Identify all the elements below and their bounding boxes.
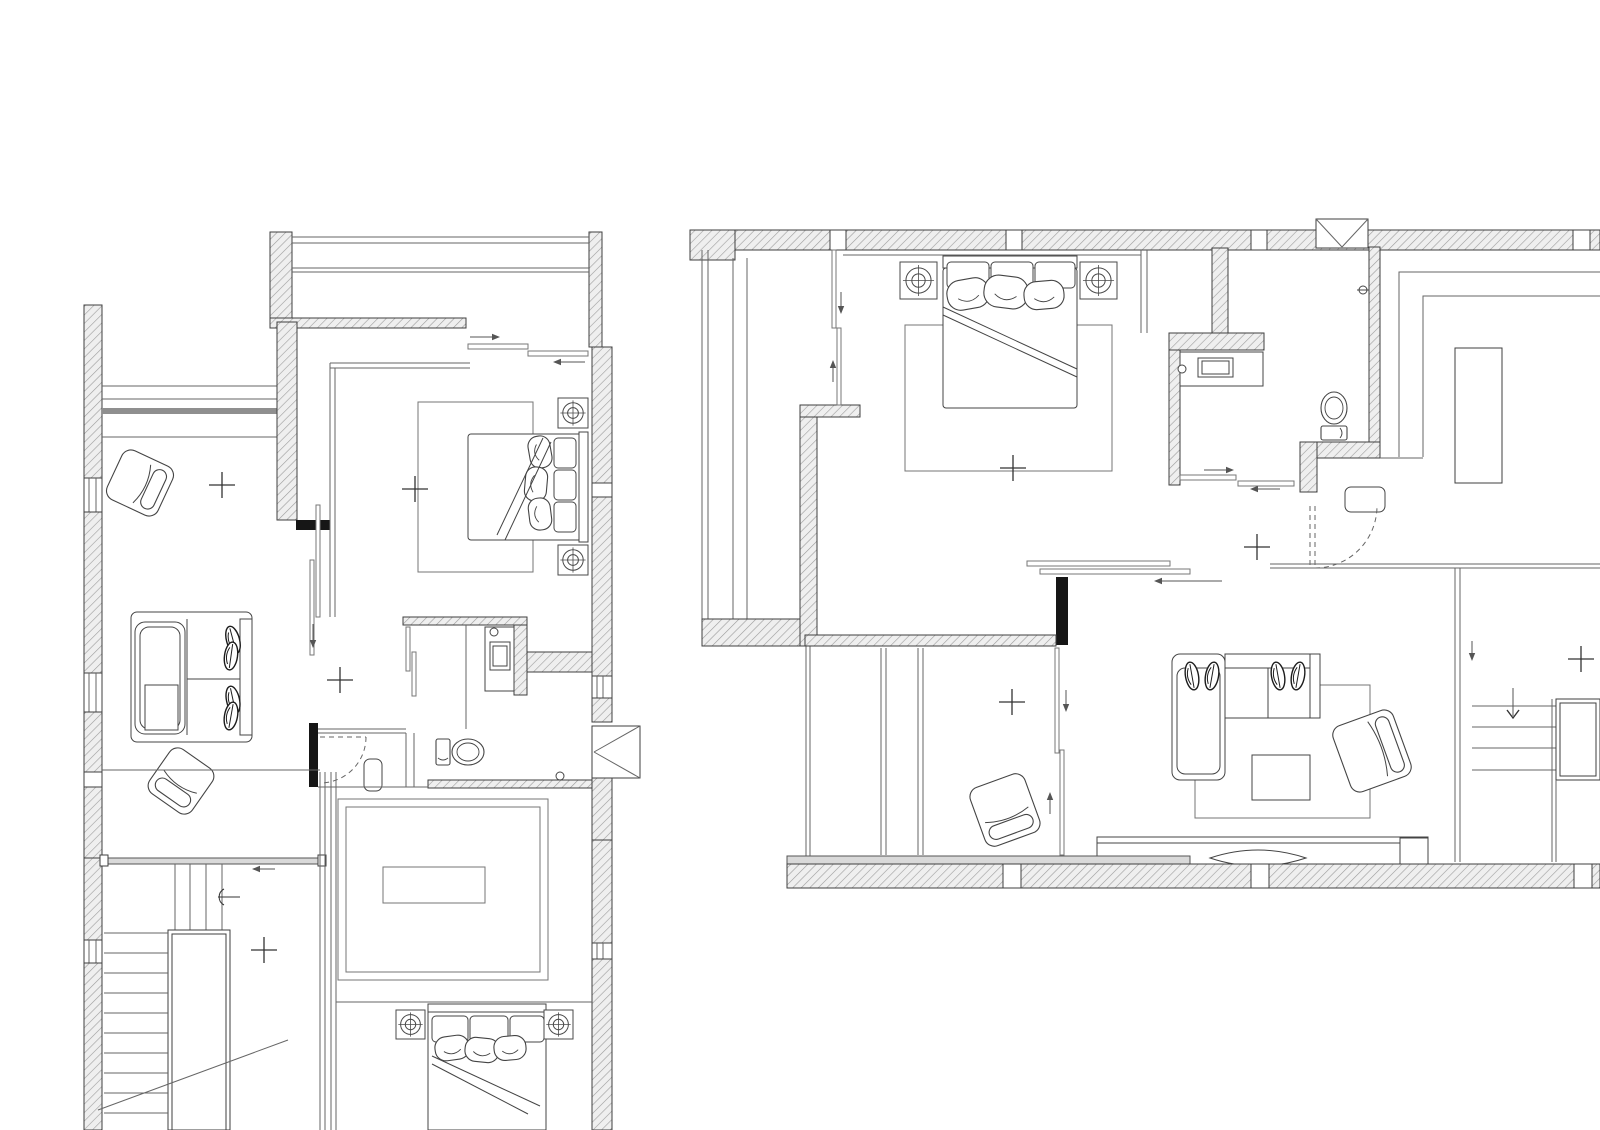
- wall: [84, 858, 102, 940]
- wall: [514, 625, 527, 695]
- sliding-door: [528, 351, 588, 356]
- center-cross-mark: [209, 472, 235, 498]
- window: [84, 478, 102, 512]
- column-marker: [84, 772, 102, 787]
- sliding-door: [406, 627, 410, 671]
- pillow: [493, 1035, 527, 1062]
- elevator: [1556, 699, 1600, 780]
- ceiling-spotlight: [1080, 262, 1117, 299]
- stair-core: [168, 930, 230, 1130]
- wall: [84, 512, 102, 673]
- wall: [270, 318, 466, 328]
- column-marker: [1251, 864, 1269, 888]
- cushion: [554, 502, 576, 532]
- center-cross-mark: [327, 667, 353, 693]
- armchair: [967, 771, 1043, 849]
- direction-arrow: [838, 292, 844, 314]
- sofa-seat: [1225, 668, 1268, 718]
- cushion: [554, 438, 576, 468]
- column-marker: [1003, 864, 1021, 888]
- armchair: [103, 447, 177, 520]
- direction-arrow: [1250, 486, 1280, 492]
- wall: [84, 787, 102, 858]
- headboard: [428, 1004, 546, 1012]
- direction-arrow: [1154, 578, 1222, 584]
- sliding-door: [1060, 750, 1064, 855]
- wall: [403, 617, 527, 625]
- armchair: [1330, 707, 1414, 795]
- wall: [702, 619, 810, 646]
- direction-arrow: [1204, 467, 1234, 473]
- stair-arrow: [218, 889, 240, 905]
- direction-arrow: [1063, 690, 1069, 712]
- center-cross-mark: [1000, 455, 1026, 481]
- wall: [592, 959, 612, 1130]
- column-marker: [1573, 230, 1590, 250]
- wall: [1369, 247, 1380, 455]
- shelf: [364, 759, 382, 791]
- sliding-door: [412, 652, 416, 696]
- sofa-arm: [1310, 654, 1320, 718]
- floorplan-svg: [0, 0, 1600, 1130]
- wall: [592, 698, 612, 722]
- shelf: [1345, 487, 1385, 512]
- faucet: [490, 628, 498, 636]
- sliding-door: [832, 250, 836, 328]
- coffee-table: [145, 685, 178, 730]
- direction-arrow: [553, 359, 585, 365]
- wall: [690, 230, 1600, 250]
- wall: [592, 347, 612, 483]
- wall: [277, 322, 297, 520]
- center-cross-mark: [999, 689, 1025, 715]
- plan-path: [1423, 296, 1600, 457]
- ceiling-spotlight: [558, 545, 588, 575]
- center-cross-mark: [1568, 646, 1594, 672]
- elevator-inner: [1560, 703, 1596, 776]
- side-table: [1400, 838, 1428, 866]
- break-line: [98, 1040, 288, 1110]
- sliding-door: [1055, 648, 1059, 753]
- direction-arrow: [1047, 792, 1053, 814]
- duct-shaft: [1316, 219, 1368, 248]
- center-cross-mark: [402, 476, 428, 502]
- toilet: [1321, 392, 1347, 440]
- sliding-door: [1027, 561, 1170, 566]
- duct-shaft: [592, 726, 640, 778]
- wall: [1300, 442, 1317, 492]
- wall: [527, 652, 592, 672]
- wall: [805, 635, 1056, 646]
- wall: [84, 963, 102, 1130]
- column-marker: [830, 230, 846, 250]
- stairs-down-arrow: [1507, 688, 1519, 718]
- wall: [84, 712, 102, 772]
- center-cross-mark: [1244, 534, 1270, 560]
- wall: [592, 840, 612, 943]
- floor-drain: [556, 772, 564, 780]
- stair-core-inner: [172, 934, 226, 1130]
- island: [1455, 348, 1502, 483]
- wall: [787, 864, 1600, 888]
- direction-arrow: [470, 334, 500, 340]
- wall: [1212, 248, 1228, 333]
- wall-solid: [1056, 577, 1068, 645]
- floorplan-page: [0, 0, 1600, 1130]
- wall: [592, 497, 612, 676]
- door-swing: [1315, 506, 1377, 568]
- center-cross-mark: [251, 937, 277, 963]
- column-marker: [1574, 864, 1592, 888]
- rug-center: [383, 867, 485, 903]
- column-marker: [1006, 230, 1022, 250]
- wall: [428, 780, 592, 788]
- wall: [592, 778, 612, 840]
- window: [84, 673, 102, 712]
- plan-rect: [100, 855, 108, 866]
- direction-arrow: [252, 866, 275, 872]
- ceiling-spotlight: [900, 262, 937, 299]
- sliding-door: [1238, 481, 1294, 486]
- rug-inner: [346, 807, 540, 972]
- pillow: [527, 497, 553, 531]
- wardrobe: [102, 408, 278, 414]
- cushion: [554, 470, 576, 500]
- right-floor-plan: [690, 219, 1600, 888]
- toilet: [436, 739, 484, 765]
- coffee-table: [1252, 755, 1310, 800]
- ceiling-spotlight: [558, 398, 588, 428]
- headboard: [579, 432, 588, 542]
- wall: [589, 232, 602, 347]
- window: [84, 940, 102, 963]
- window: [592, 676, 612, 698]
- sliding-door: [1040, 569, 1190, 574]
- rug: [338, 799, 548, 980]
- sliding-door: [468, 344, 528, 349]
- sofa-back: [240, 619, 252, 735]
- pillow: [1023, 279, 1065, 310]
- direction-arrow: [1469, 641, 1475, 661]
- door-swing: [320, 737, 366, 783]
- left-floor-plan: [84, 232, 640, 1130]
- faucet: [1178, 365, 1186, 373]
- ceiling-spotlight: [396, 1010, 425, 1039]
- window-sill: [102, 858, 324, 864]
- window: [592, 483, 612, 497]
- direction-arrow: [830, 360, 836, 382]
- sliding-door: [1180, 475, 1236, 480]
- door-jamb: [309, 723, 318, 787]
- wall: [84, 305, 102, 478]
- column-marker: [1251, 230, 1267, 250]
- window-sill: [787, 856, 1190, 864]
- armchair: [144, 744, 218, 818]
- wall: [270, 232, 292, 324]
- ceiling-spotlight: [544, 1010, 573, 1039]
- wall: [800, 405, 860, 417]
- door-jamb: [296, 520, 330, 530]
- wall: [1169, 333, 1264, 350]
- wall: [800, 405, 817, 646]
- wall: [690, 230, 735, 260]
- window: [592, 943, 612, 959]
- sliding-door: [316, 505, 320, 617]
- sliding-door: [837, 328, 841, 405]
